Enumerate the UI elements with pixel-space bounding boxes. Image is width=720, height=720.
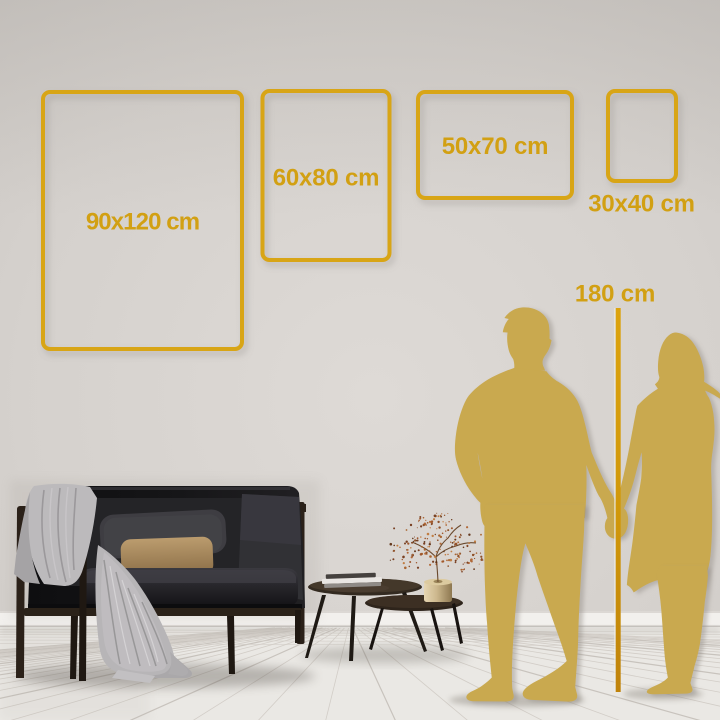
svg-text:90x120 cm: 90x120 cm <box>86 209 199 236</box>
svg-text:30x40 cm: 30x40 cm <box>588 191 695 218</box>
svg-text:50x70 cm: 50x70 cm <box>442 133 549 160</box>
svg-text:180 cm: 180 cm <box>575 280 655 307</box>
svg-text:60x80 cm: 60x80 cm <box>273 165 380 192</box>
